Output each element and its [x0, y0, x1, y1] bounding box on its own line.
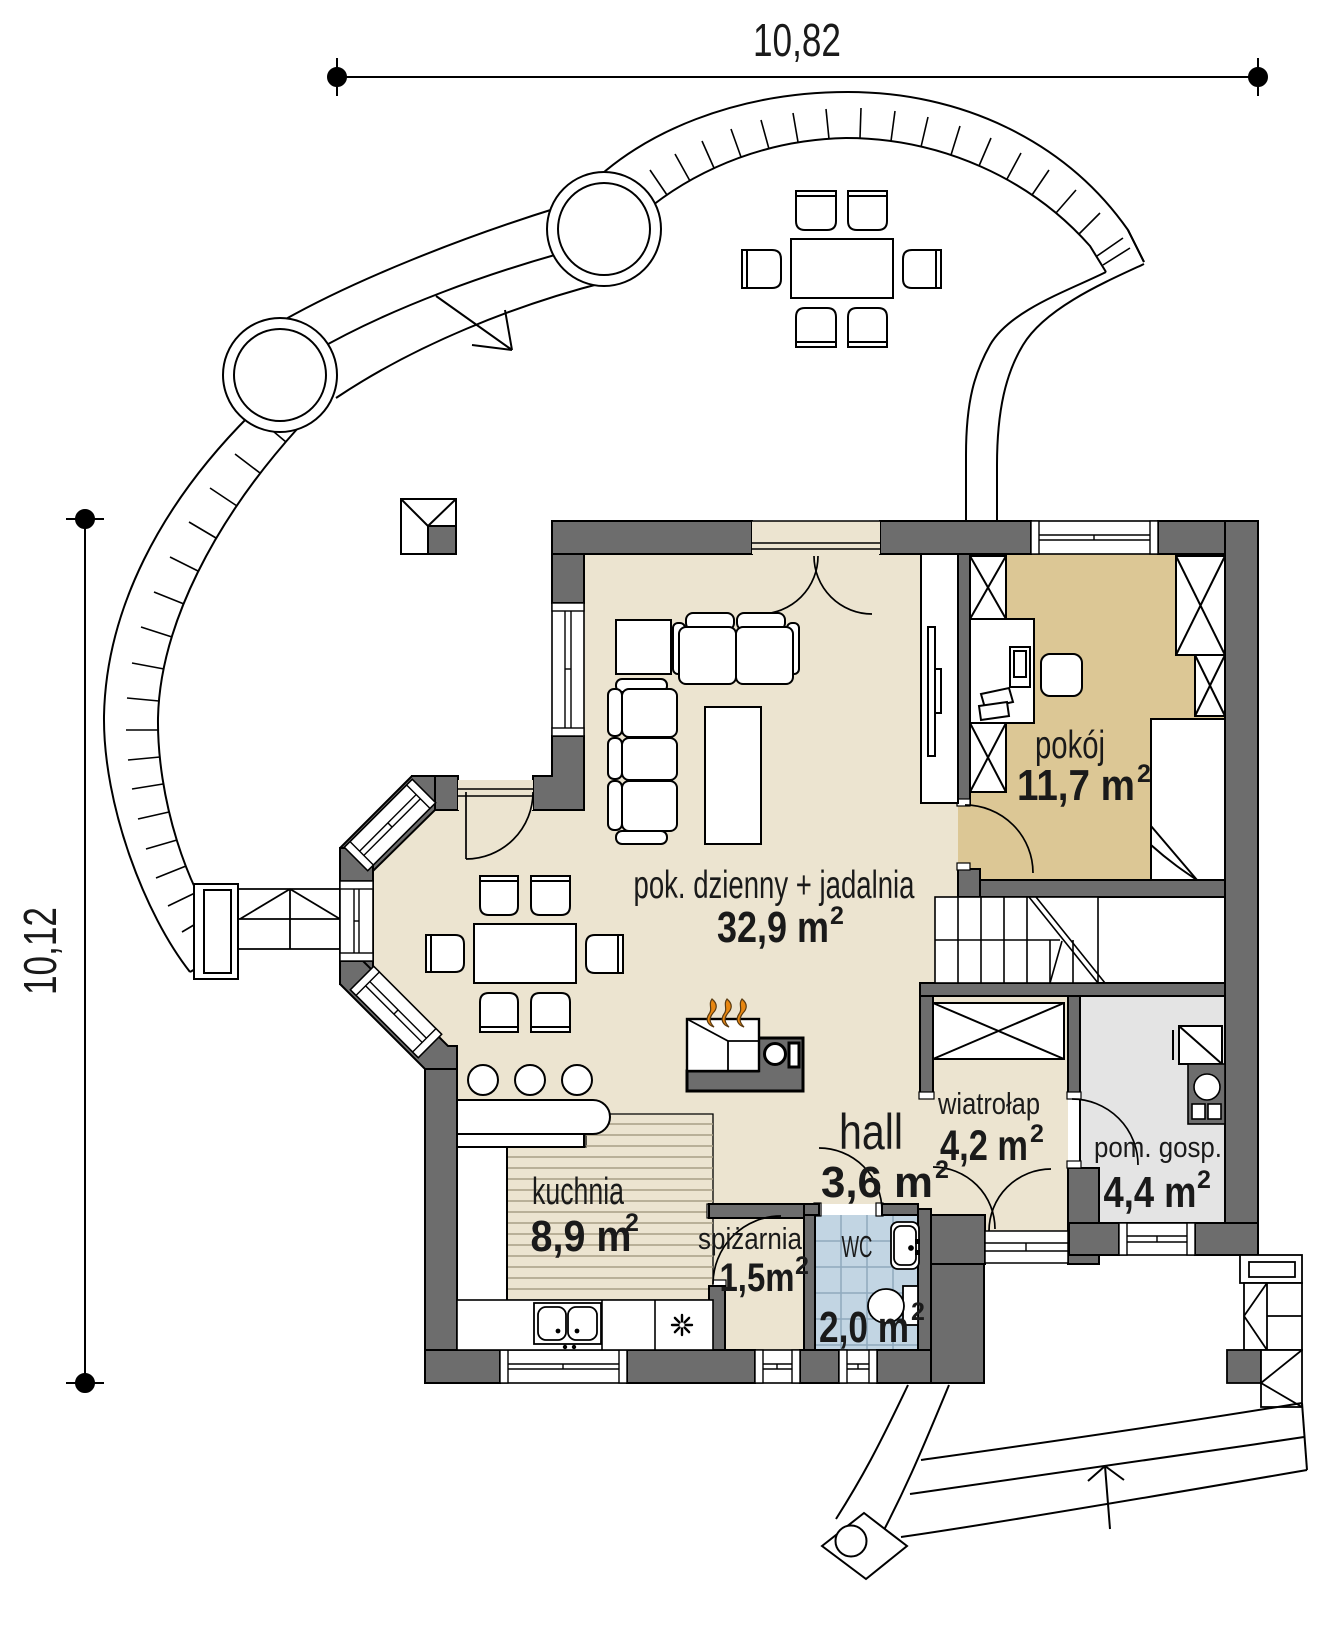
svg-text:spiżarnia: spiżarnia: [698, 1221, 803, 1256]
svg-text:3,6 m: 3,6 m: [821, 1158, 933, 1207]
svg-text:2: 2: [1030, 1120, 1044, 1148]
svg-text:8,9 m: 8,9 m: [531, 1212, 632, 1261]
svg-text:10,82: 10,82: [753, 14, 841, 66]
svg-text:4,2 m: 4,2 m: [940, 1122, 1028, 1170]
svg-text:2,0 m: 2,0 m: [819, 1303, 909, 1352]
svg-text:11,7 m: 11,7 m: [1017, 761, 1135, 810]
svg-text:2: 2: [1197, 1166, 1211, 1194]
svg-text:hall: hall: [839, 1104, 903, 1160]
svg-text:2: 2: [830, 902, 844, 930]
svg-text:2: 2: [625, 1209, 639, 1237]
svg-text:2: 2: [1137, 760, 1151, 788]
svg-text:pok. dzienny + jadalnia: pok. dzienny + jadalnia: [634, 864, 915, 907]
svg-text:wiatrołap: wiatrołap: [937, 1086, 1040, 1121]
svg-text:4,4 m: 4,4 m: [1104, 1168, 1197, 1217]
svg-text:1,5m: 1,5m: [720, 1256, 795, 1300]
svg-text:pom. gosp.: pom. gosp.: [1094, 1132, 1222, 1164]
svg-text:WC: WC: [842, 1229, 873, 1264]
svg-text:kuchnia: kuchnia: [532, 1171, 625, 1213]
svg-text:32,9 m: 32,9 m: [717, 903, 829, 952]
svg-text:2: 2: [911, 1298, 925, 1326]
svg-text:2: 2: [795, 1252, 809, 1280]
svg-text:10,12: 10,12: [14, 907, 66, 995]
